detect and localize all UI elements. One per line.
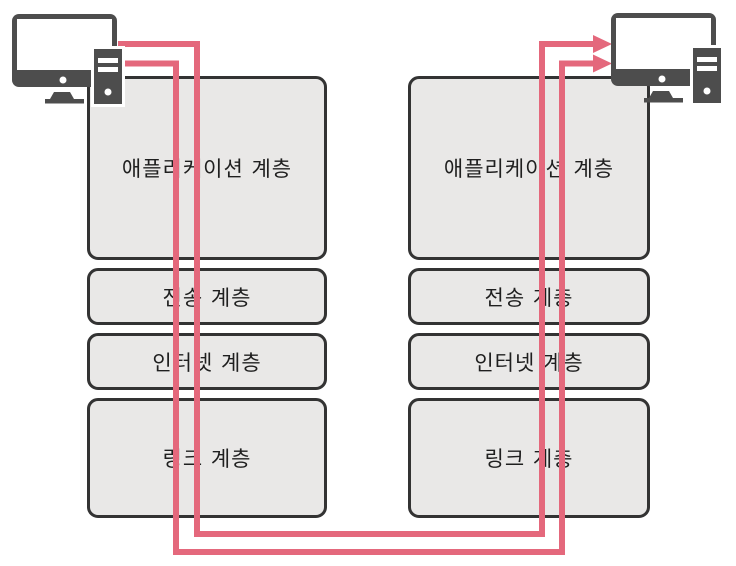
layer-box-transport-left: 전송 계층 [87,268,327,325]
monitor-button-dot [60,77,67,84]
tower-case [94,49,122,104]
tower-drive-slot [697,66,717,71]
monitor-stand-base [45,99,84,104]
layer-box-internet-right: 인터넷 계층 [408,333,650,390]
layer-label-transport-left: 전송 계층 [163,282,252,312]
layer-box-link-left: 링크 계층 [87,398,327,518]
desktop-computer-icon [6,8,126,108]
desktop-computer-icon [605,7,725,107]
tower-drive-slot [697,57,717,62]
tower-case [693,48,721,103]
layer-label-internet-right: 인터넷 계층 [474,347,583,377]
layer-label-transport-right: 전송 계층 [485,282,574,312]
layer-box-link-right: 링크 계층 [408,398,650,518]
layer-box-internet-left: 인터넷 계층 [87,333,327,390]
monitor-button-dot [659,76,666,83]
tower-power-dot [704,88,711,95]
monitor-stand [50,92,74,99]
layer-label-link-right: 링크 계층 [485,443,574,473]
monitor-stand-base [644,98,683,103]
tower-drive-slot [98,67,118,72]
layer-label-internet-left: 인터넷 계층 [152,347,261,377]
tower-drive-slot [98,58,118,63]
layer-label-link-left: 링크 계층 [163,443,252,473]
monitor-stand [649,91,673,98]
layer-label-application-right: 애플리케이션 계층 [444,153,614,183]
tower-power-dot [105,89,112,96]
diagram-canvas: 애플리케이션 계층 전송 계층 인터넷 계층 링크 계층 애플리케이션 계층 전… [0,0,736,566]
layer-box-transport-right: 전송 계층 [408,268,650,325]
layer-label-application-left: 애플리케이션 계층 [122,153,292,183]
